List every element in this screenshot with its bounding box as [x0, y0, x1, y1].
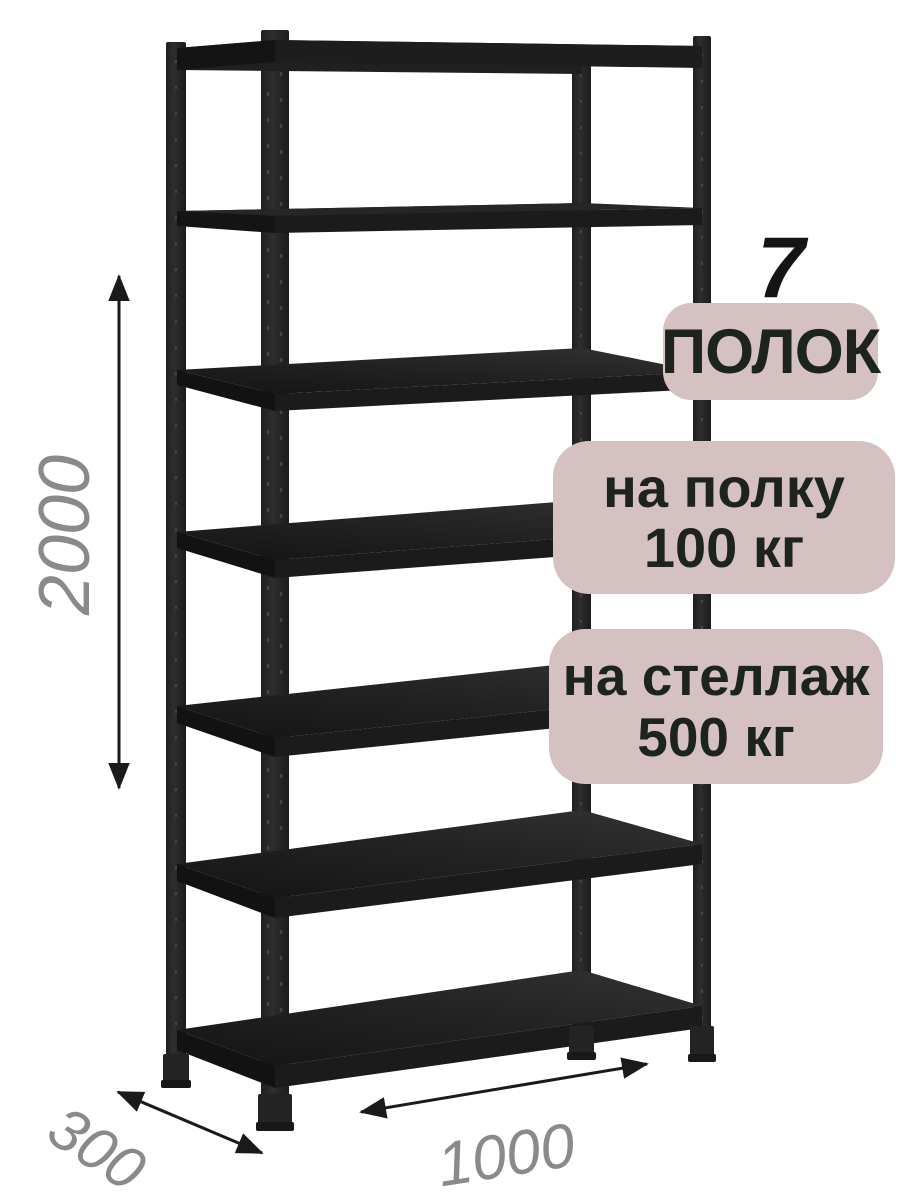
shelf-7	[177, 970, 702, 1088]
rack-load-badge: на стеллаж 500 кг	[549, 629, 883, 784]
post-back-left	[166, 42, 186, 1062]
rack-load-line2: 500 кг	[637, 707, 794, 768]
product-image: 2000 300 1000 7 ПОЛОК на полку 100 кг на…	[0, 0, 900, 1200]
shelf-1	[177, 40, 702, 74]
height-dimension-label: 2000	[20, 375, 110, 695]
shelf-load-line1: на полку	[603, 458, 845, 518]
rack-illustration	[0, 0, 900, 1200]
shelf-2	[177, 203, 702, 233]
shelf-load-line2: 100 кг	[644, 518, 804, 578]
shelf-count-badge: ПОЛОК	[663, 303, 878, 400]
shelf-6	[177, 810, 702, 918]
shelf-count-number: 7	[700, 222, 862, 314]
shelf-load-badge: на полку 100 кг	[553, 441, 895, 594]
rack-load-line1: на стеллаж	[563, 646, 870, 707]
shelf-3	[177, 348, 702, 411]
